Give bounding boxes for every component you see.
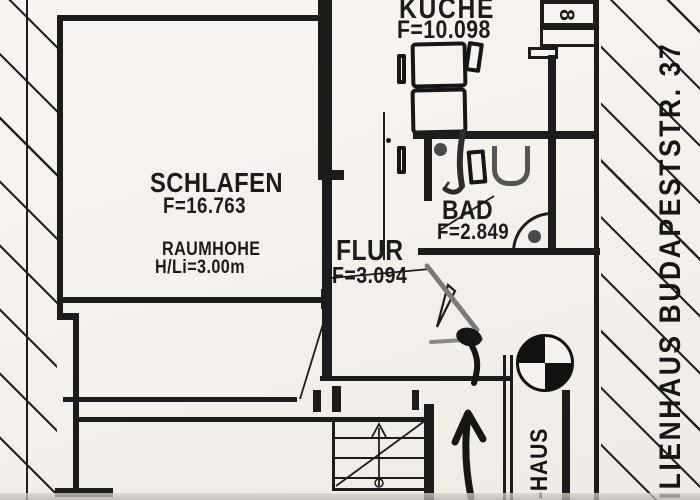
photo-edge-shadow	[0, 493, 700, 500]
marker-blob	[454, 325, 484, 349]
marker-tail	[472, 346, 477, 383]
hand-up-arrow	[466, 416, 471, 497]
floorplan-photo: SCHLAFEN F=16.763 RAUMHOHE H/Li=3.00m KÜ…	[0, 0, 700, 500]
stair-diagonal	[336, 420, 426, 486]
marker-diagonal	[427, 266, 477, 330]
door-swing-line	[300, 311, 327, 399]
marker-squiggle	[460, 132, 463, 186]
linework-overlay	[0, 0, 700, 500]
flur-strike-line	[332, 269, 430, 278]
bad-door-line	[440, 196, 494, 230]
